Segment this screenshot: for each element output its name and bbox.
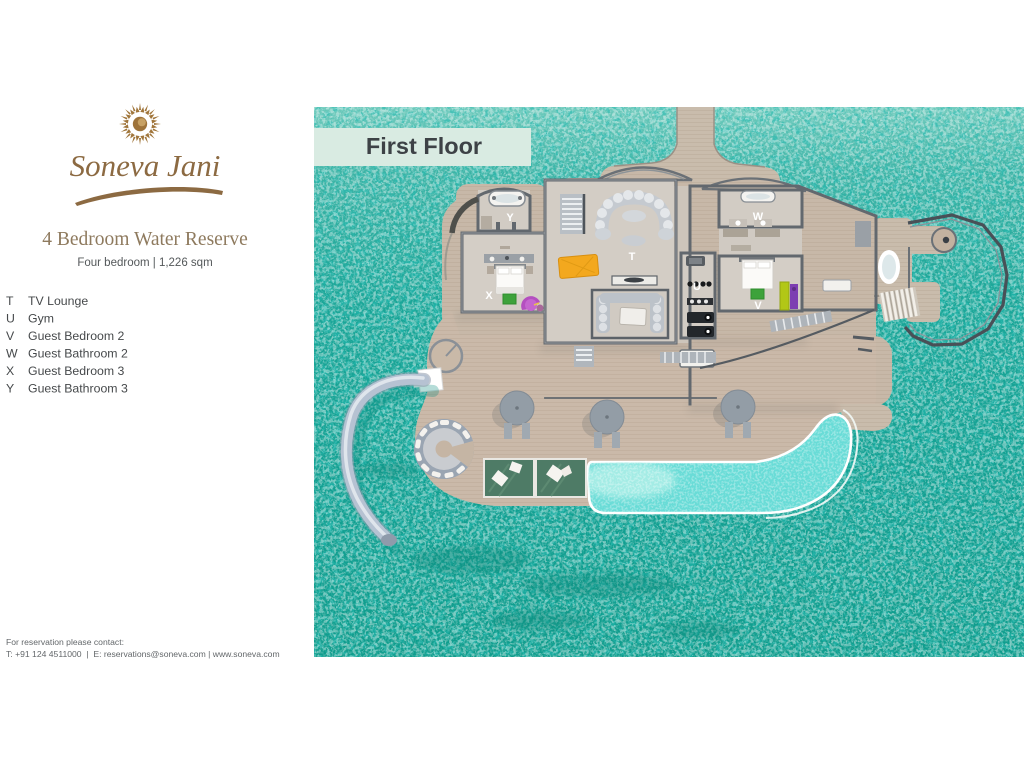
svg-text:Y: Y — [6, 382, 14, 396]
svg-text:W: W — [6, 347, 18, 361]
svg-text:Guest Bathroom 2: Guest Bathroom 2 — [28, 347, 128, 361]
svg-text:V: V — [6, 329, 15, 343]
svg-text:T: T — [6, 294, 14, 308]
svg-text:Soneva Jani: Soneva Jani — [70, 148, 221, 183]
svg-text:X: X — [6, 364, 14, 378]
svg-text:U: U — [6, 312, 15, 326]
svg-text:4 Bedroom Water Reserve: 4 Bedroom Water Reserve — [42, 229, 247, 250]
svg-text:U: U — [693, 281, 701, 293]
svg-text:X: X — [485, 290, 493, 302]
svg-text:T: T — [629, 251, 636, 263]
svg-text:T: +91 124 4511000 | E: rese: T: +91 124 4511000 | E: reservations@son… — [6, 649, 280, 659]
svg-text:Four bedroom | 1,226 sqm: Four bedroom | 1,226 sqm — [77, 257, 212, 269]
svg-text:W: W — [753, 211, 764, 223]
svg-text:Gym: Gym — [28, 312, 54, 326]
svg-text:Guest Bedroom 2: Guest Bedroom 2 — [28, 329, 125, 343]
svg-text:TV Lounge: TV Lounge — [28, 294, 88, 308]
svg-text:For reservation please contact: For reservation please contact: — [6, 637, 124, 647]
svg-text:Guest Bathroom 3: Guest Bathroom 3 — [28, 382, 128, 396]
svg-text:Guest Bedroom 3: Guest Bedroom 3 — [28, 364, 125, 378]
svg-text:Y: Y — [506, 212, 514, 224]
svg-text:First Floor: First Floor — [366, 133, 482, 159]
svg-text:V: V — [754, 300, 762, 312]
